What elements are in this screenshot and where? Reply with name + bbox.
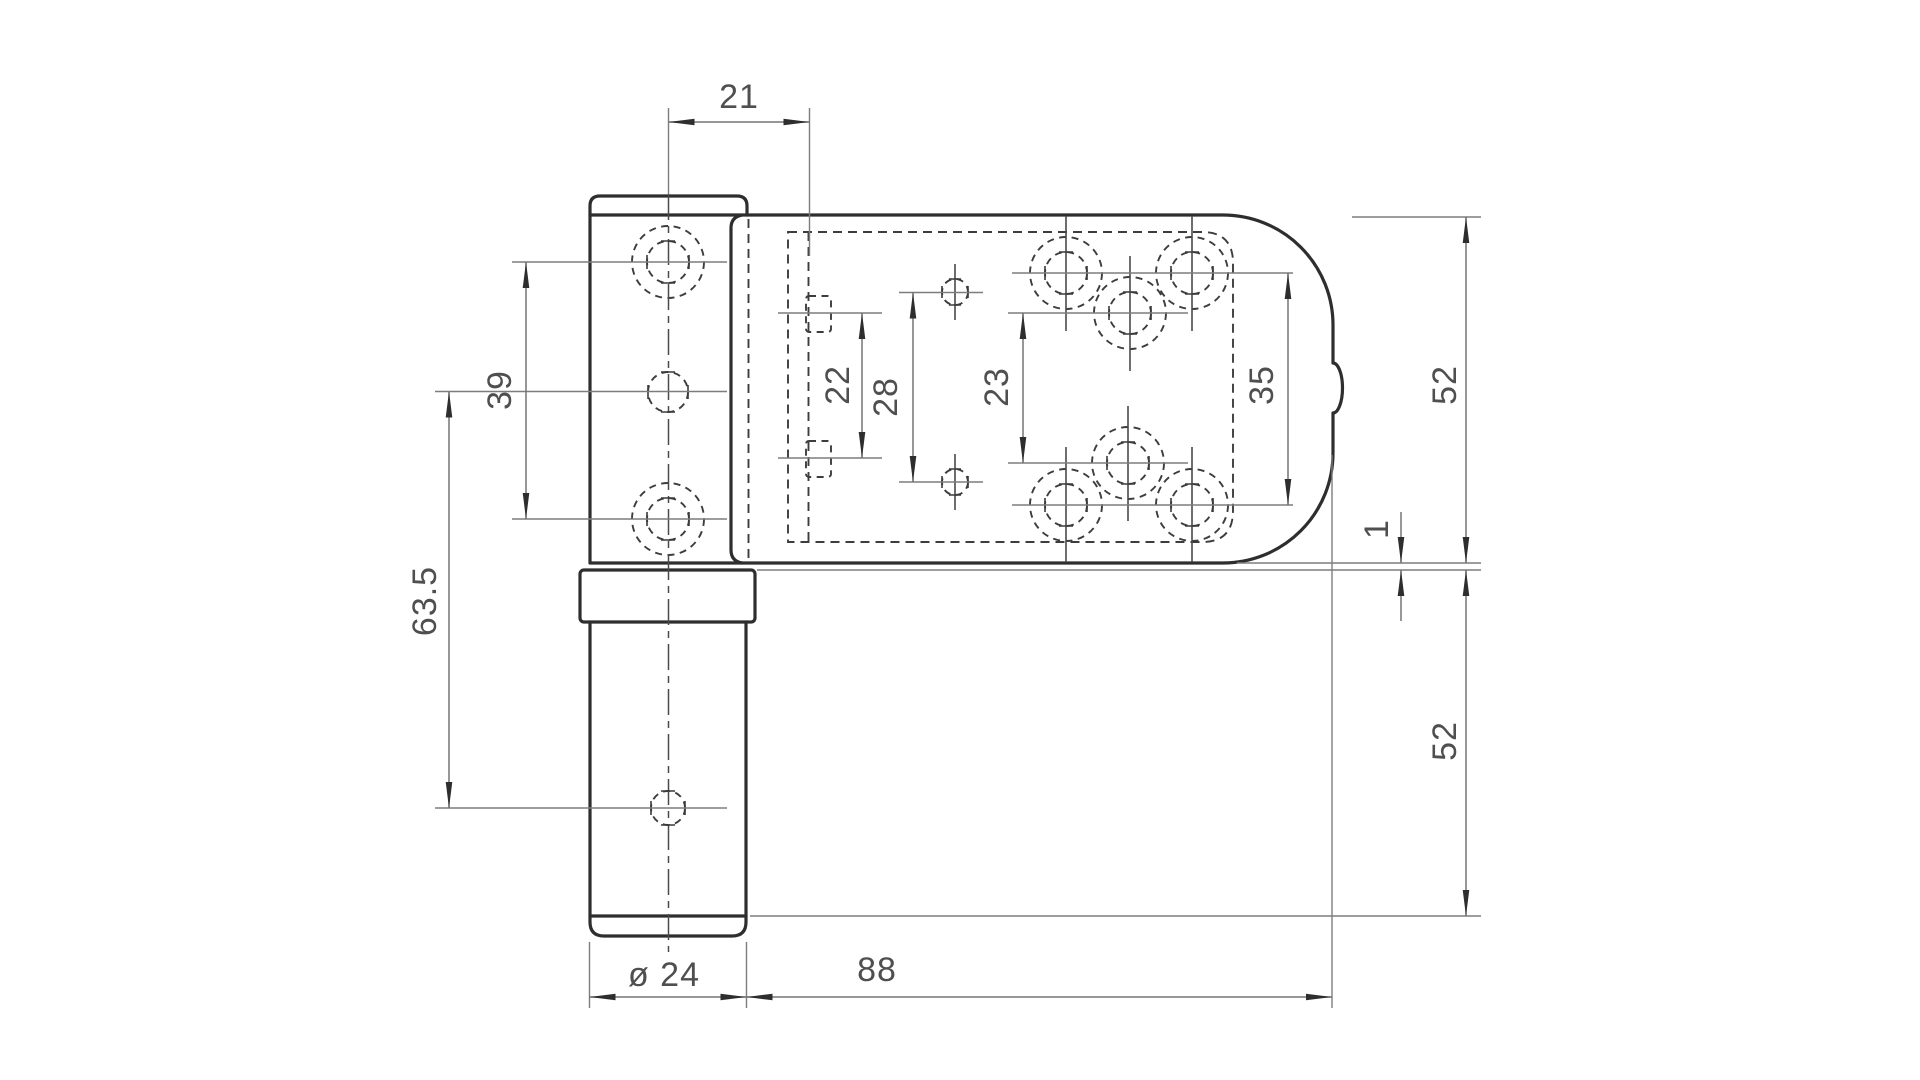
dimension-label-dia-24: ø 24 <box>628 956 700 994</box>
dimension-23: 23 <box>978 313 1023 463</box>
dimension-label-52-bottom: 52 <box>1426 721 1464 761</box>
dimension-label-28: 28 <box>867 377 905 417</box>
extension-lines <box>435 108 1481 1008</box>
dimension-63-5: 63.5 <box>406 392 449 809</box>
hinge-body <box>580 196 1343 936</box>
dimension-label-1: 1 <box>1358 519 1396 539</box>
dimension-label-39: 39 <box>481 370 519 410</box>
dimension-dia-24: ø 24 <box>590 956 747 997</box>
slot-upper <box>806 296 831 332</box>
dimension-label-88: 88 <box>857 951 897 989</box>
dimension-label-52-top: 52 <box>1426 365 1464 405</box>
hidden-features <box>632 219 1233 825</box>
drawing-page: 21 39 63.5 22 28 23 35 52 <box>0 0 1920 1080</box>
slot-lower <box>806 441 831 477</box>
dimension-88: 88 <box>747 951 1333 997</box>
dimension-21: 21 <box>669 78 810 122</box>
dimension-label-21: 21 <box>719 78 759 116</box>
technical-drawing-canvas: 21 39 63.5 22 28 23 35 52 <box>0 0 1920 1080</box>
dimension-35: 35 <box>1243 273 1288 505</box>
dimension-label-35: 35 <box>1243 365 1281 405</box>
dimension-label-63-5: 63.5 <box>406 566 444 636</box>
dimension-label-22: 22 <box>819 365 857 405</box>
dimension-39: 39 <box>481 262 526 519</box>
dimension-22: 22 <box>819 313 862 458</box>
dimension-52-bottom: 52 <box>1426 570 1466 916</box>
dimension-label-23: 23 <box>978 367 1016 407</box>
dimension-1: 1 <box>1358 512 1401 621</box>
barrel-inner-edge <box>731 215 742 563</box>
extension-lines-path <box>435 108 1481 1008</box>
collar <box>580 570 755 622</box>
dimension-52-top: 52 <box>1426 217 1466 563</box>
dimension-28: 28 <box>867 293 913 483</box>
